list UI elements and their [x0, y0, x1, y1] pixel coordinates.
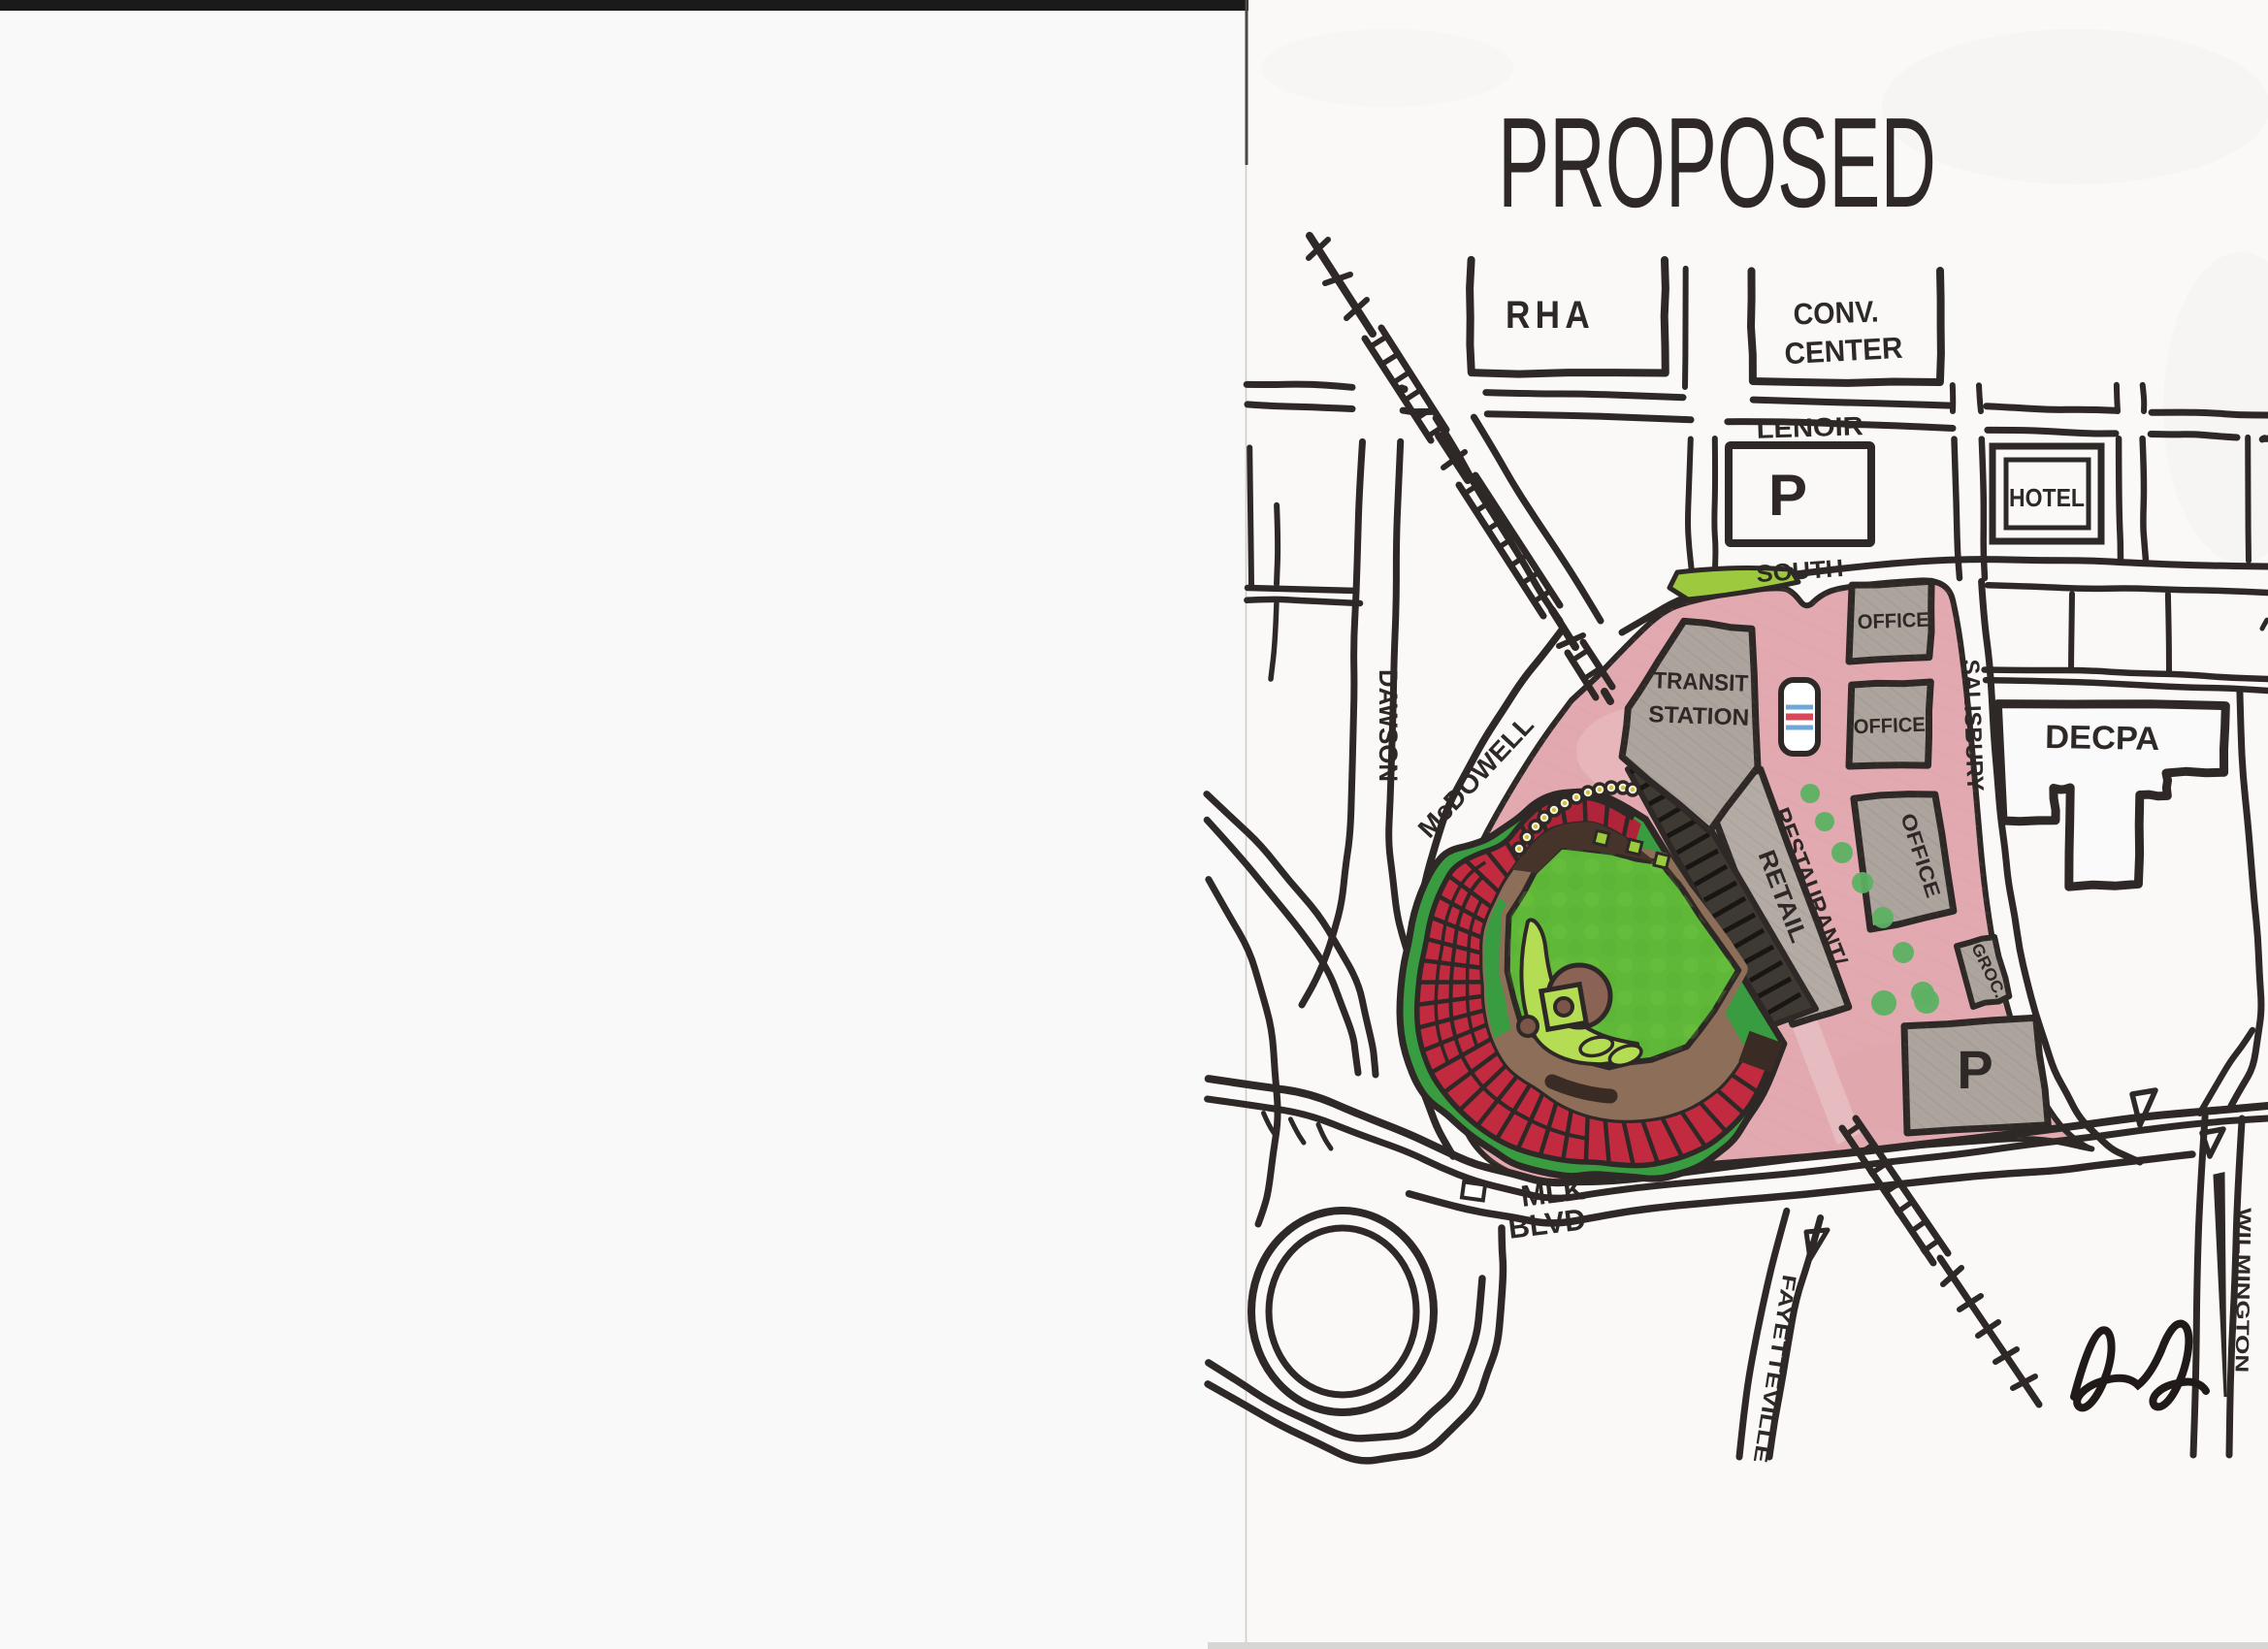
svg-text:TRANSIT: TRANSIT: [1653, 667, 1749, 696]
svg-text:CENTER: CENTER: [1784, 331, 1904, 371]
svg-text:STATION: STATION: [1648, 701, 1750, 731]
svg-text:CONV.: CONV.: [1793, 294, 1879, 331]
svg-text:OFFICE: OFFICE: [1857, 609, 1929, 634]
svg-text:PROPOSED: PROPOSED: [1498, 91, 1936, 234]
svg-text:OFFICE: OFFICE: [1853, 714, 1926, 739]
svg-text:RHA: RHA: [1506, 294, 1595, 337]
svg-text:P: P: [1957, 1039, 1993, 1100]
svg-text:DECPA: DECPA: [2045, 719, 2160, 758]
svg-text:HOTEL: HOTEL: [2009, 483, 2085, 512]
svg-text:P: P: [1768, 463, 1807, 528]
svg-text:LENOIR: LENOIR: [1756, 411, 1863, 444]
svg-text:DAWSON: DAWSON: [1374, 669, 1403, 782]
svg-text:WILMINGTON: WILMINGTON: [2231, 1208, 2254, 1373]
svg-text:SALISBURY: SALISBURY: [1958, 659, 1989, 792]
